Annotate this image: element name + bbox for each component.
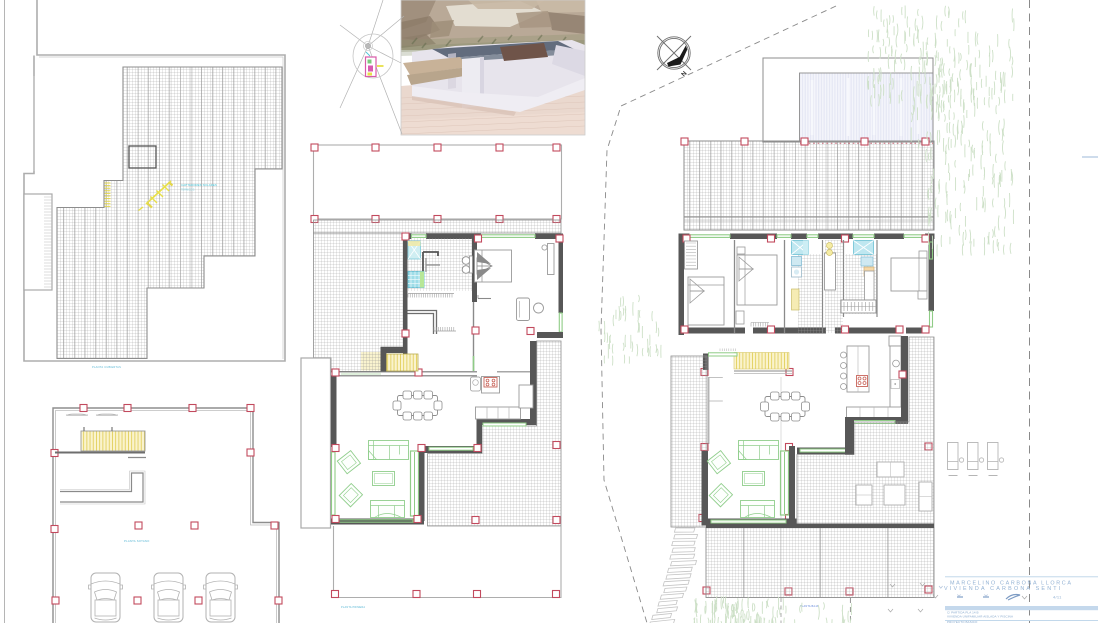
svg-text:PLANTA CUBIERTAS: PLANTA CUBIERTAS — [92, 365, 121, 369]
svg-text:VIVIENDA CARBONA SENTI: VIVIENDA CARBONA SENTI — [944, 586, 1063, 592]
svg-text:PLANTA SOTANO: PLANTA SOTANO — [124, 539, 150, 543]
svg-text:TERMICOS: TERMICOS — [181, 189, 195, 192]
svg-text:CAPTADORES SOLARES: CAPTADORES SOLARES — [181, 183, 217, 187]
svg-text:VIVIENDA UNIFAMILIAR AISLADA Y: VIVIENDA UNIFAMILIAR AISLADA Y PISCINA — [947, 615, 1013, 619]
svg-text:4/11: 4/11 — [1053, 595, 1062, 600]
svg-text:PLANTA PRIMERA: PLANTA PRIMERA — [341, 606, 365, 609]
svg-text:PLANTA BAJA: PLANTA BAJA — [800, 605, 819, 608]
